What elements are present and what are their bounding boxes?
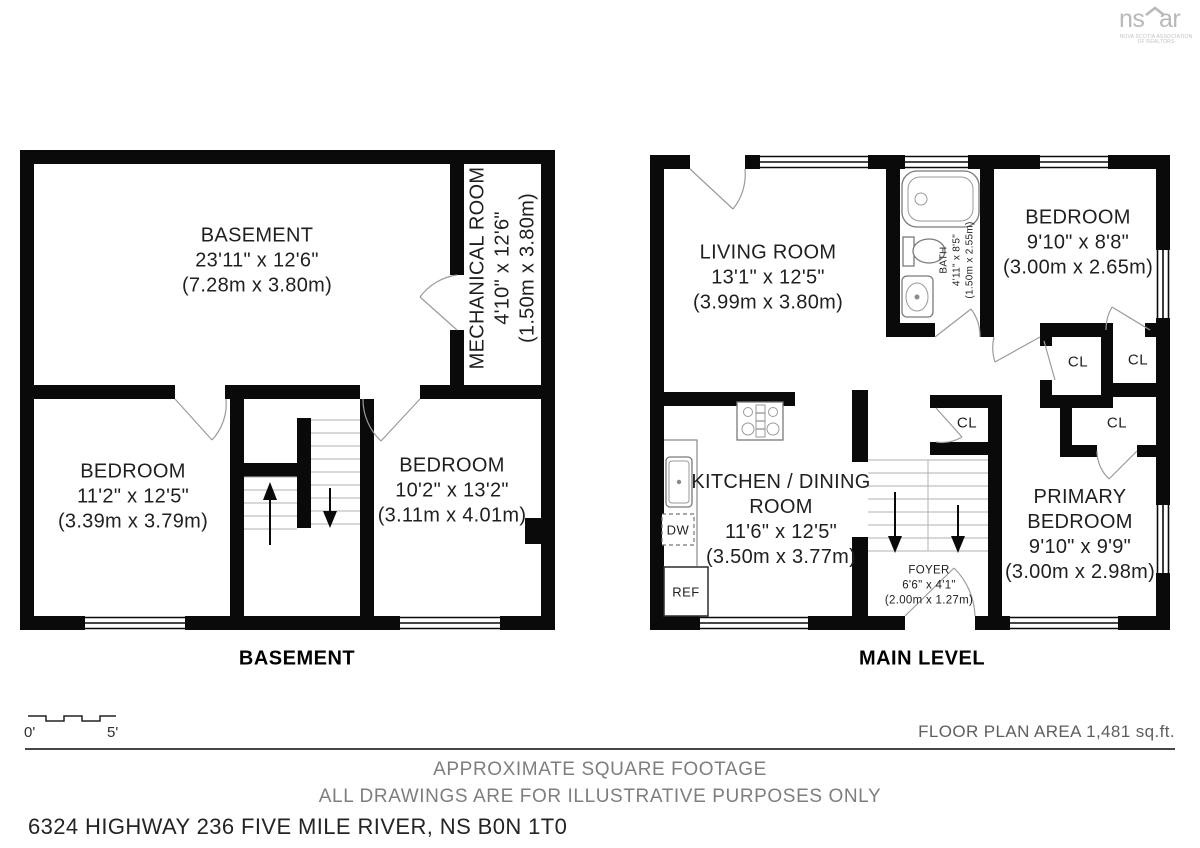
disclaimer-line-1: APPROXIMATE SQUARE FOOTAGE (0, 759, 1200, 781)
kitchen-sink (666, 457, 692, 507)
room-label-basement: BASEMENT 23'11" x 12'6" (7.28m x 3.80m) (182, 224, 332, 299)
room-dims: 13'1" x 12'5" (693, 266, 843, 291)
room-label-bath: BATH 4'11" x 8'5" (1.50m x 2.55m) (938, 221, 977, 298)
logo-text-ar: ar (1159, 6, 1180, 32)
room-dims: 4'11" x 8'5" (951, 221, 964, 298)
scale-end-label: 5' (107, 724, 118, 741)
room-label-primary-bedroom: PRIMARY BEDROOM 9'10" x 9'9" (3.00m x 2.… (1005, 485, 1155, 585)
room-metric: (3.99m x 3.80m) (693, 291, 843, 316)
room-label-living: LIVING ROOM 13'1" x 12'5" (3.99m x 3.80m… (693, 241, 843, 316)
refrigerator-label: REF (672, 585, 700, 600)
basement-window-right (400, 618, 500, 629)
basement-level-title: BASEMENT (239, 648, 355, 671)
room-dims: 11'2" x 12'5" (58, 485, 208, 510)
room-dims: 11'6" x 12'5" (691, 520, 870, 545)
room-name-line1: PRIMARY (1005, 485, 1155, 510)
room-dims: 9'10" x 8'8" (1003, 231, 1153, 256)
nsar-logo: ns ar NOVA SCOTIA ASSOCIATION OF REALTOR… (1116, 6, 1196, 45)
room-name: BEDROOM (1003, 206, 1153, 231)
room-metric: (3.11m x 4.01m) (378, 504, 527, 529)
room-name: BEDROOM (58, 460, 208, 485)
dishwasher-label: DW (667, 523, 690, 538)
room-name: LIVING ROOM (693, 241, 843, 266)
room-dims: 9'10" x 9'9" (1005, 535, 1155, 560)
room-name: BASEMENT (182, 224, 332, 249)
room-metric: (1.50m x 2.55m) (964, 221, 977, 298)
property-address: 6324 HIGHWAY 236 FIVE MILE RIVER, NS B0N… (28, 814, 567, 840)
footer-divider (25, 748, 1175, 750)
floor-plan-area-note: FLOOR PLAN AREA 1,481 sq.ft. (918, 722, 1175, 742)
room-label-bedroom-right: BEDROOM 10'2" x 13'2" (3.11m x 4.01m) (378, 454, 527, 529)
room-metric: (2.00m x 1.27m) (885, 594, 973, 609)
room-name: BEDROOM (378, 454, 527, 479)
bath-sink (902, 276, 933, 317)
basement-doors (175, 275, 457, 441)
stairs-up-arrow (263, 482, 277, 545)
room-label-mechanical: MECHANICAL ROOM 4'10" x 12'6" (1.50m x 3… (466, 167, 541, 370)
room-dims: 23'11" x 12'6" (182, 249, 332, 274)
room-name-line1: KITCHEN / DINING (691, 470, 870, 495)
closet-label-4: CL (1107, 415, 1127, 432)
nsar-logo-mark: ns ar (1116, 6, 1196, 32)
room-label-bedroom: BEDROOM 9'10" x 8'8" (3.00m x 2.65m) (1003, 206, 1153, 281)
stairs-down-arrow-left (888, 492, 902, 553)
floor-plan-page: ns ar NOVA SCOTIA ASSOCIATION OF REALTOR… (0, 0, 1200, 848)
scale-start-label: 0' (24, 724, 35, 741)
bathtub (902, 171, 979, 227)
closet-label-2: CL (1128, 352, 1148, 369)
scale-bar (28, 716, 116, 721)
basement-window-left (85, 618, 185, 629)
logo-tagline: NOVA SCOTIA ASSOCIATION OF REALTORS (1116, 35, 1196, 45)
room-name: FOYER (885, 564, 973, 579)
room-dims: 4'10" x 12'6" (491, 167, 516, 370)
room-name-line2: BEDROOM (1005, 510, 1155, 535)
closet-label-1: CL (1068, 354, 1088, 371)
room-name-line2: ROOM (691, 495, 870, 520)
room-metric: (3.39m x 3.79m) (58, 510, 208, 535)
room-label-foyer: FOYER 6'6" x 4'1" (2.00m x 1.27m) (885, 564, 973, 609)
room-dims: 6'6" x 4'1" (885, 579, 973, 594)
room-name: MECHANICAL ROOM (466, 167, 491, 370)
room-label-bedroom-left: BEDROOM 11'2" x 12'5" (3.39m x 3.79m) (58, 460, 208, 535)
main-level-title: MAIN LEVEL (859, 648, 985, 671)
room-name: BATH (938, 221, 951, 298)
stove (737, 402, 783, 440)
room-metric: (1.50m x 3.80m) (516, 167, 541, 370)
room-metric: (3.00m x 2.65m) (1003, 256, 1153, 281)
room-label-kitchen: KITCHEN / DINING ROOM 11'6" x 12'5" (3.5… (691, 470, 870, 570)
closet-label-3: CL (957, 415, 977, 432)
main-staircase (868, 460, 988, 553)
disclaimer-line-2: ALL DRAWINGS ARE FOR ILLUSTRATIVE PURPOS… (0, 786, 1200, 808)
room-metric: (3.00m x 2.98m) (1005, 560, 1155, 585)
logo-text-ns: ns (1119, 6, 1144, 32)
stairs-down-arrow (323, 488, 337, 528)
room-dims: 10'2" x 13'2" (378, 479, 527, 504)
room-metric: (3.50m x 3.77m) (691, 545, 870, 570)
floor-plan-drawing (0, 0, 1200, 848)
room-metric: (7.28m x 3.80m) (182, 274, 332, 299)
